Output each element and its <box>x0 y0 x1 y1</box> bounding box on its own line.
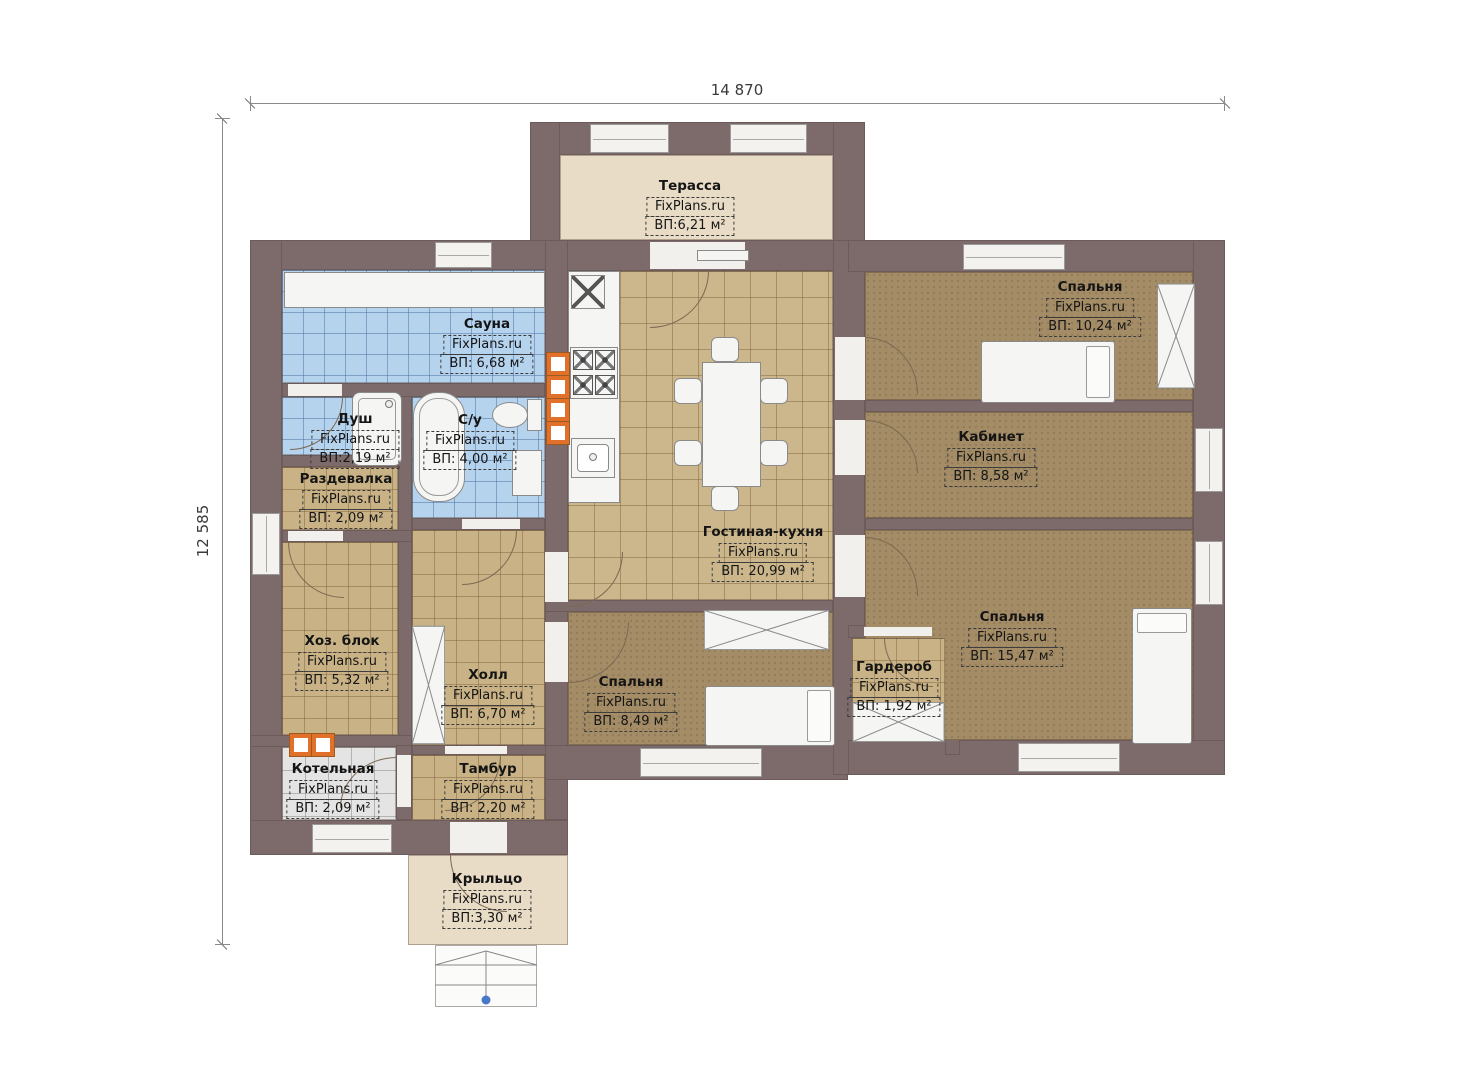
room-title: Гардероб <box>856 659 932 675</box>
watermark: FixPlans.ru <box>850 678 938 698</box>
room-label-wardrobe: Гардероб FixPlans.ru ВП: 1,92 м² <box>847 659 940 717</box>
chair <box>760 378 788 404</box>
door-opening-bedroom-3 <box>545 622 568 682</box>
room-title: С/у <box>458 412 482 428</box>
watermark: FixPlans.ru <box>311 430 399 450</box>
door-opening-utility <box>288 531 343 541</box>
room-area: ВП: 15,47 м² <box>961 647 1063 667</box>
room-area: ВП: 5,32 м² <box>295 671 388 691</box>
door-opening-study <box>835 420 865 475</box>
room-title: Сауна <box>464 316 510 332</box>
wall <box>250 240 560 270</box>
flue-marker <box>547 376 569 398</box>
door-opening-boiler <box>397 755 411 807</box>
room-label-dressing: Раздевалка FixPlans.ru ВП: 2,09 м² <box>299 471 392 529</box>
room-title: Кабинет <box>958 429 1023 445</box>
porch-steps <box>435 945 537 1007</box>
watermark: FixPlans.ru <box>302 490 390 510</box>
room-area: ВП: 8,49 м² <box>584 712 677 732</box>
wall <box>1193 240 1225 775</box>
room-label-wc: С/у FixPlans.ru ВП: 4,00 м² <box>423 412 516 470</box>
room-area: ВП:3,30 м² <box>442 909 531 929</box>
window-left-wall <box>252 513 280 575</box>
flue-marker <box>547 422 569 444</box>
stove-burner <box>573 350 593 370</box>
room-area: ВП: 2,20 м² <box>441 799 534 819</box>
pillow <box>1137 613 1187 633</box>
terrace-door-leaf <box>697 250 749 261</box>
door-opening-wardrobe <box>864 627 932 636</box>
room-area: ВП:6,21 м² <box>645 216 734 236</box>
room-title: Крыльцо <box>452 871 523 887</box>
room-area: ВП: 6,70 м² <box>441 705 534 725</box>
dimension-tick <box>215 118 230 119</box>
wall <box>865 518 1193 530</box>
window-bedroom-3 <box>640 748 762 777</box>
window-bedroom-2 <box>1195 541 1223 605</box>
wall <box>545 240 568 820</box>
door-opening-bedroom-2 <box>835 535 865 597</box>
dimension-tick <box>250 96 251 111</box>
room-label-utility: Хоз. блок FixPlans.ru ВП: 5,32 м² <box>295 633 388 691</box>
room-label-living-kitchen: Гостиная-кухня FixPlans.ru ВП: 20,99 м² <box>703 524 824 582</box>
watermark: FixPlans.ru <box>968 628 1056 648</box>
room-label-porch: Крыльцо FixPlans.ru ВП:3,30 м² <box>442 871 531 929</box>
pillow <box>1086 346 1110 398</box>
stove-burner <box>595 350 615 370</box>
door-opening-sauna <box>288 384 342 396</box>
room-label-vestibule: Тамбур FixPlans.ru ВП: 2,20 м² <box>441 761 534 819</box>
dimension-width-label: 14 870 <box>711 81 764 99</box>
watermark: FixPlans.ru <box>289 780 377 800</box>
watermark: FixPlans.ru <box>444 780 532 800</box>
watermark: FixPlans.ru <box>587 693 675 713</box>
window-terrace-2 <box>730 124 807 153</box>
kitchen-vent <box>571 275 605 309</box>
room-title: Спальня <box>980 609 1045 625</box>
dimension-line-top <box>250 103 1225 104</box>
watermark: FixPlans.ru <box>947 448 1035 468</box>
wall <box>250 820 568 855</box>
room-label-terrace: Терасса FixPlans.ru ВП:6,21 м² <box>645 178 734 236</box>
stove-burner <box>573 375 593 395</box>
stove-burner <box>595 375 615 395</box>
room-area: ВП: 20,99 м² <box>712 562 814 582</box>
watermark: FixPlans.ru <box>719 543 807 563</box>
room-area: ВП: 2,09 м² <box>286 799 379 819</box>
chair <box>711 486 739 511</box>
window-sauna-top <box>435 242 492 268</box>
window-boiler <box>312 824 392 853</box>
door-opening-hall-kitchen <box>545 552 568 602</box>
door-opening-entrance <box>450 822 507 853</box>
window-study <box>1195 428 1223 492</box>
room-title: Душ <box>337 411 372 427</box>
room-area: ВП: 2,09 м² <box>299 509 392 529</box>
room-title: Тамбур <box>459 761 516 777</box>
room-area: ВП: 4,00 м² <box>423 450 516 470</box>
watermark: FixPlans.ru <box>1046 298 1134 318</box>
room-title: Котельная <box>292 761 375 777</box>
dimension-line-left <box>222 118 223 945</box>
chair <box>674 378 702 404</box>
chair <box>760 440 788 466</box>
watermark: FixPlans.ru <box>426 431 514 451</box>
door-opening-wc <box>462 519 520 529</box>
dimension-tick <box>1224 96 1225 111</box>
door-opening-bedroom-1 <box>835 337 865 400</box>
room-label-sauna: Сауна FixPlans.ru ВП: 6,68 м² <box>440 316 533 374</box>
room-label-bedroom-1: Спальня FixPlans.ru ВП: 10,24 м² <box>1039 279 1141 337</box>
room-label-bedroom-3: Спальня FixPlans.ru ВП: 8,49 м² <box>584 674 677 732</box>
dining-table <box>702 362 761 487</box>
dimension-height-label: 12 585 <box>194 505 212 558</box>
room-area: ВП: 10,24 м² <box>1039 317 1141 337</box>
room-title: Гостиная-кухня <box>703 524 824 540</box>
room-title: Спальня <box>1058 279 1123 295</box>
window-bedroom-1 <box>963 244 1065 270</box>
room-title: Раздевалка <box>300 471 393 487</box>
shower-drain <box>385 400 393 408</box>
flue-marker <box>312 734 334 756</box>
watermark: FixPlans.ru <box>298 652 386 672</box>
room-label-shower: Душ FixPlans.ru ВП:2,19 м² <box>310 411 399 469</box>
room-title: Холл <box>468 667 507 683</box>
window-terrace-1 <box>590 124 669 153</box>
wall <box>530 122 560 255</box>
flue-marker <box>547 399 569 421</box>
room-label-boiler: Котельная FixPlans.ru ВП: 2,09 м² <box>286 761 379 819</box>
room-title: Хоз. блок <box>304 633 379 649</box>
watermark: FixPlans.ru <box>443 890 531 910</box>
sauna-bench <box>284 272 545 308</box>
closet-bedroom-1 <box>1157 283 1195 389</box>
watermark: FixPlans.ru <box>444 686 532 706</box>
step-marker-dot <box>482 996 491 1005</box>
pillow <box>807 690 831 742</box>
room-label-study: Кабинет FixPlans.ru ВП: 8,58 м² <box>944 429 1037 487</box>
floor-plan: 14 870 12 585 <box>0 0 1474 1080</box>
room-area: ВП: 8,58 м² <box>944 467 1037 487</box>
watermark: FixPlans.ru <box>443 335 531 355</box>
wall <box>530 122 865 155</box>
room-area: ВП: 6,68 м² <box>440 354 533 374</box>
chair <box>711 337 739 362</box>
room-title: Терасса <box>659 178 721 194</box>
room-label-bedroom-2: Спальня FixPlans.ru ВП: 15,47 м² <box>961 609 1063 667</box>
room-area: ВП: 1,92 м² <box>847 697 940 717</box>
room-label-hall: Холл FixPlans.ru ВП: 6,70 м² <box>441 667 534 725</box>
flue-marker <box>290 734 312 756</box>
sink-drain <box>589 453 597 461</box>
dimension-tick <box>215 944 230 945</box>
door-opening-vestibule <box>445 746 507 754</box>
closet-hall <box>412 625 445 745</box>
room-area: ВП:2,19 м² <box>310 449 399 469</box>
chair <box>674 440 702 466</box>
flue-marker <box>547 353 569 375</box>
toilet-tank <box>527 399 542 431</box>
watermark: FixPlans.ru <box>646 197 734 217</box>
closet-bedroom-3 <box>703 610 830 650</box>
room-title: Спальня <box>599 674 664 690</box>
window-bedroom-2-south <box>1018 743 1120 772</box>
